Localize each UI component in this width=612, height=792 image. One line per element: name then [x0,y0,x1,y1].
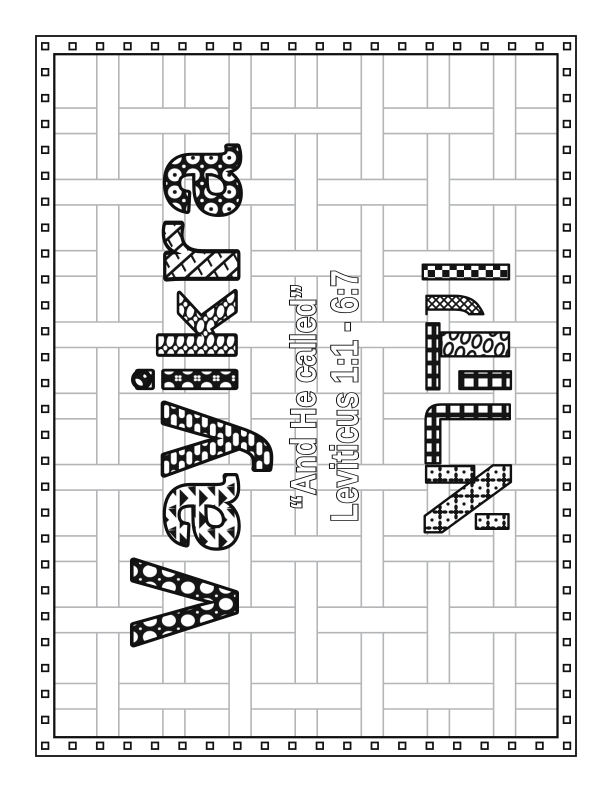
svg-text:y: y [111,403,271,476]
svg-text:Leviticus 1:1 - 6:7: Leviticus 1:1 - 6:7 [325,270,367,522]
svg-text:a: a [117,146,267,218]
svg-text:r: r [116,222,266,288]
svg-text:k: k [139,291,258,363]
svg-text:V: V [103,560,268,645]
svg-text:“And He called”: “And He called” [285,284,324,510]
svg-text:a: a [119,476,265,552]
